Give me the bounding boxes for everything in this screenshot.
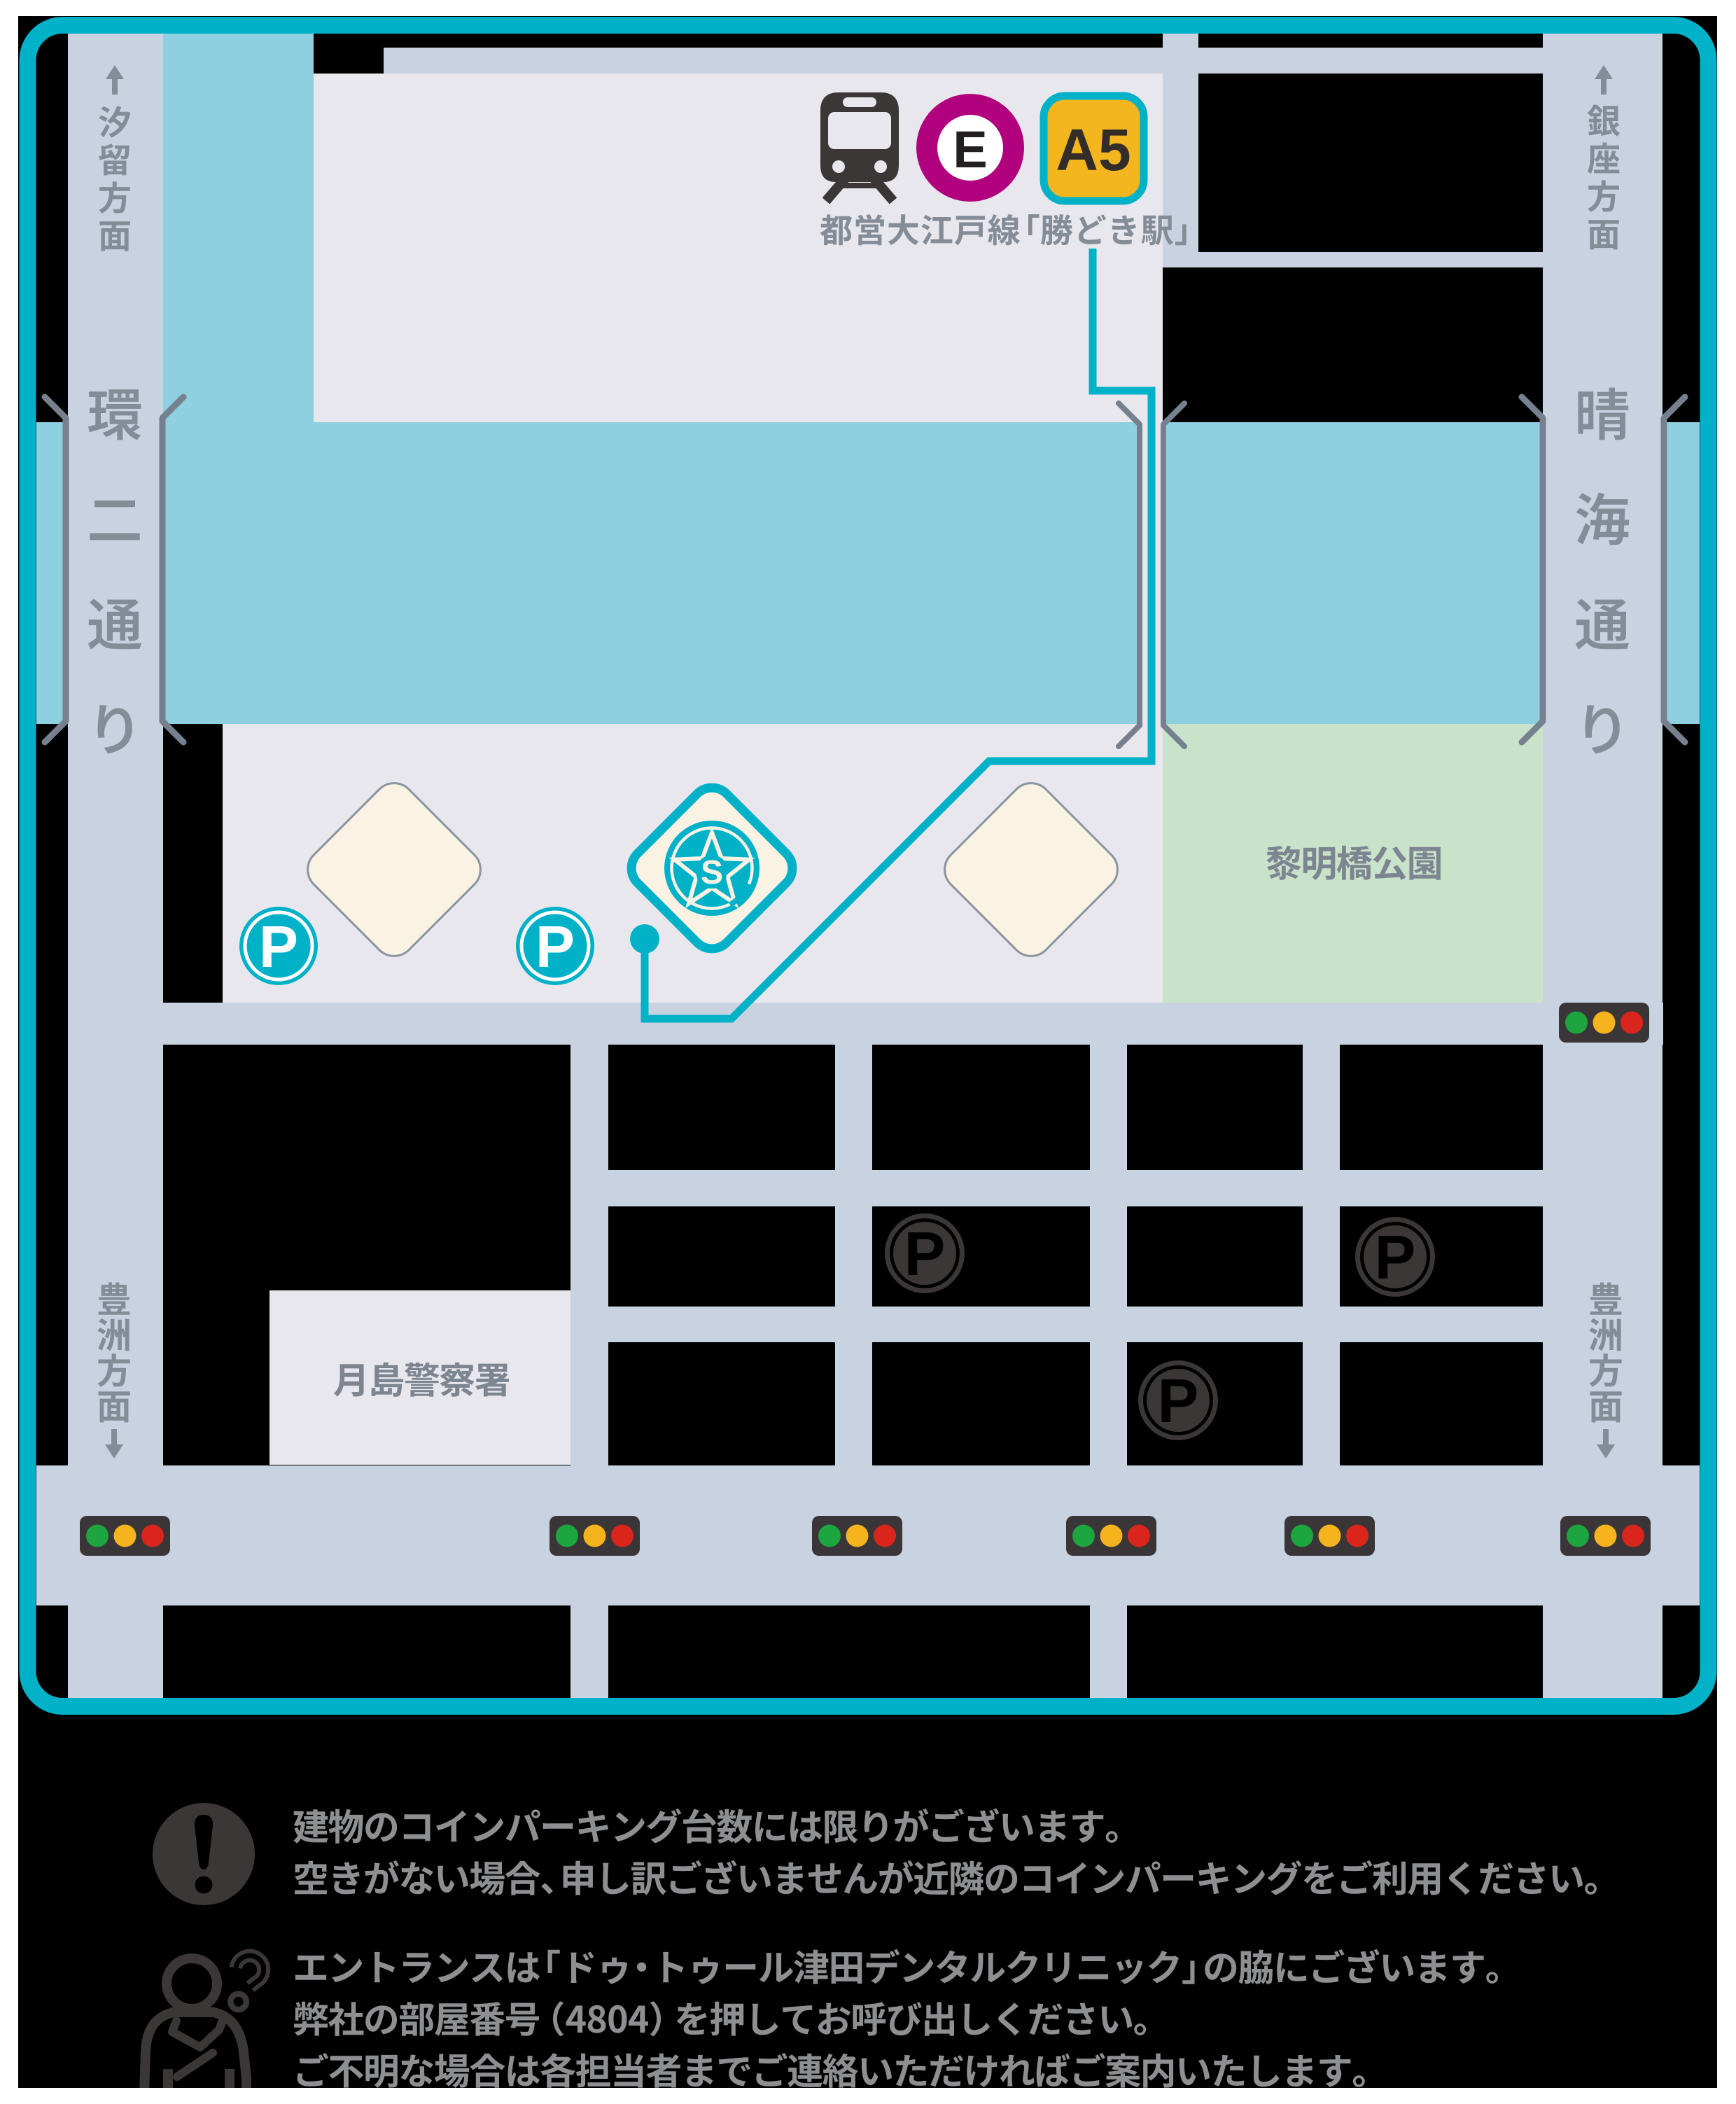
svg-text:E: E (953, 120, 987, 179)
svg-text:P: P (1375, 1222, 1416, 1292)
svg-text:P: P (904, 1219, 946, 1288)
svg-text:P: P (1158, 1366, 1199, 1435)
svg-text:A5: A5 (1056, 117, 1130, 183)
svg-text:P: P (535, 914, 575, 980)
svg-text:P: P (259, 914, 298, 980)
svg-text:S: S (701, 854, 723, 891)
